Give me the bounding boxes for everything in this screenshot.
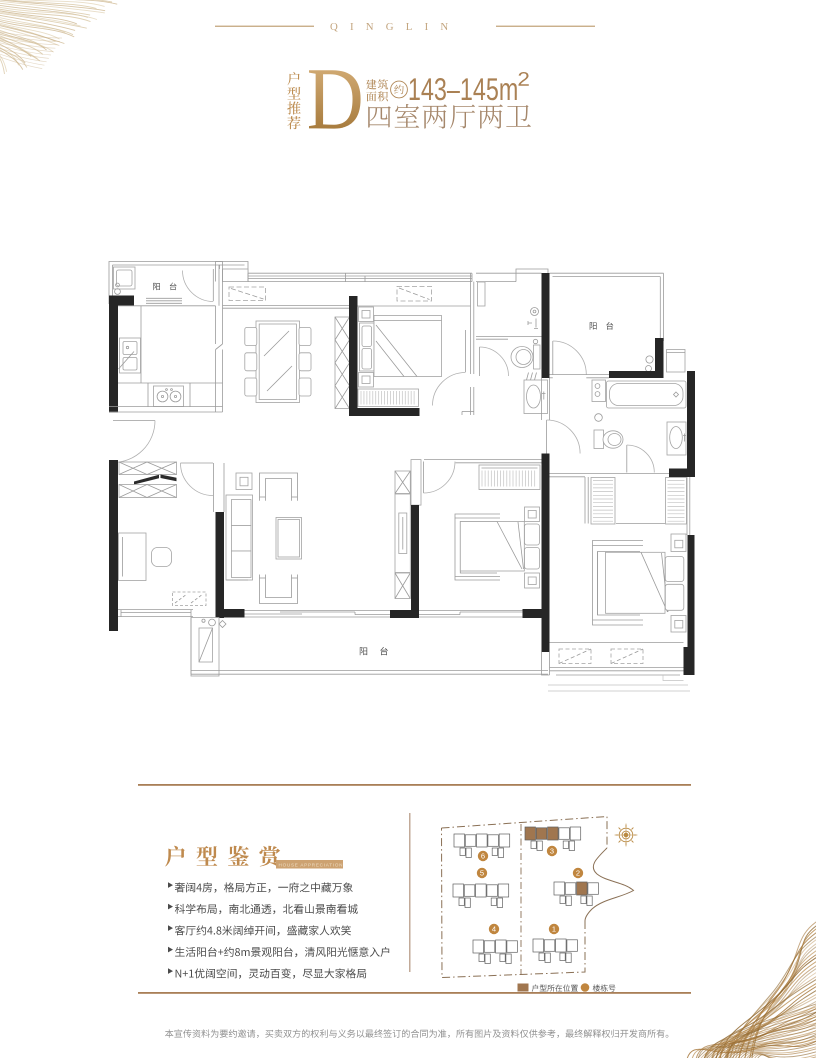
svg-text:QINGLIN: QINGLIN — [330, 21, 460, 33]
svg-text:6: 6 — [481, 852, 485, 861]
svg-text:1: 1 — [552, 925, 556, 934]
svg-text:3: 3 — [550, 847, 554, 856]
svg-text:4: 4 — [492, 925, 496, 934]
svg-text:2: 2 — [576, 869, 580, 878]
svg-text:5: 5 — [480, 869, 484, 878]
svg-text:HOUSE APPRECIATION: HOUSE APPRECIATION — [279, 862, 344, 867]
